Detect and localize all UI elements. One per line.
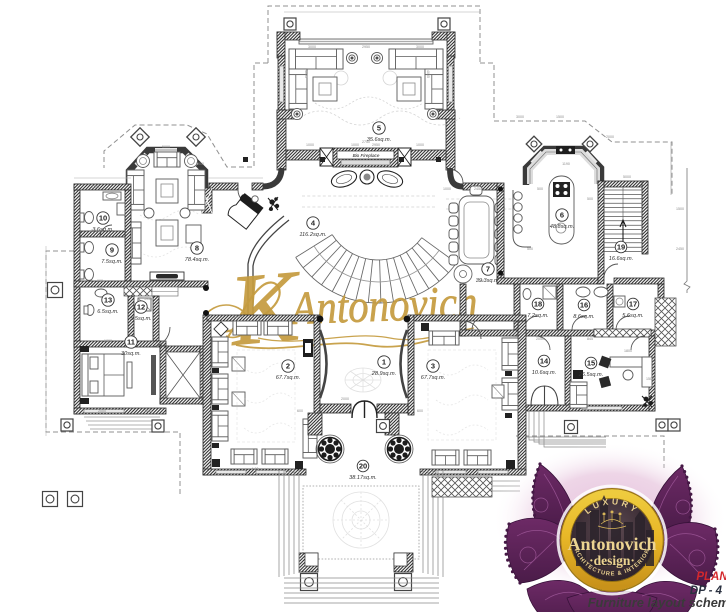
svg-text:1800: 1800 (104, 339, 112, 343)
svg-text:5.5sq.m.: 5.5sq.m. (130, 316, 151, 322)
svg-text:2000: 2000 (341, 397, 349, 401)
svg-text:17: 17 (629, 300, 637, 309)
svg-text:1000: 1000 (416, 143, 424, 147)
svg-text:2700: 2700 (91, 185, 99, 189)
svg-text:2250: 2250 (91, 229, 99, 233)
svg-text:1190: 1190 (562, 162, 570, 166)
svg-text:4005: 4005 (426, 70, 430, 78)
svg-text:700: 700 (517, 279, 523, 283)
svg-text:500: 500 (527, 247, 533, 251)
svg-text:2450: 2450 (676, 247, 684, 251)
svg-text:10: 10 (99, 214, 107, 223)
svg-text:1500: 1500 (556, 115, 564, 119)
svg-text:6: 6 (560, 211, 564, 220)
svg-text:67.7sq.m.: 67.7sq.m. (421, 375, 446, 381)
svg-text:2000: 2000 (606, 135, 614, 139)
svg-text:PLAN: PLAN (696, 571, 726, 583)
svg-text:3680: 3680 (144, 409, 152, 413)
svg-text:600: 600 (297, 409, 303, 413)
svg-text:24.07: 24.07 (234, 315, 243, 319)
svg-text:30sq.m.: 30sq.m. (121, 351, 141, 357)
svg-text:2050: 2050 (536, 337, 544, 341)
svg-text:8.6sq.m.: 8.6sq.m. (573, 314, 594, 320)
svg-text:12: 12 (137, 303, 145, 312)
svg-text:18: 18 (534, 300, 542, 309)
svg-text:1000: 1000 (306, 143, 314, 147)
svg-text:14: 14 (540, 357, 549, 366)
svg-text:Bio Fireplace: Bio Fireplace (353, 153, 380, 158)
svg-text:2750: 2750 (362, 140, 370, 144)
svg-text:2450: 2450 (474, 187, 482, 191)
svg-text:1000: 1000 (351, 143, 359, 147)
svg-text:5000: 5000 (623, 175, 631, 179)
svg-text:8: 8 (195, 244, 199, 253)
svg-text:3000: 3000 (516, 115, 524, 119)
svg-text:16.6sq.m.: 16.6sq.m. (609, 256, 634, 262)
svg-text:9: 9 (110, 246, 114, 255)
svg-text:1500: 1500 (676, 207, 684, 211)
svg-text:1000: 1000 (443, 187, 451, 191)
svg-text:Antonovich: Antonovich (567, 534, 656, 554)
svg-text:38.17sq.m.: 38.17sq.m. (349, 475, 377, 481)
svg-text:28.9sq.m.: 28.9sq.m. (371, 371, 397, 377)
svg-text:7.2sq.m.: 7.2sq.m. (527, 313, 548, 319)
svg-text:·design·: ·design· (589, 553, 635, 568)
svg-text:7: 7 (486, 265, 490, 274)
svg-text:15: 15 (587, 359, 595, 368)
svg-text:5.6sq.m.: 5.6sq.m. (622, 313, 643, 319)
svg-text:2000: 2000 (476, 279, 484, 283)
svg-text:7.5sq.m.: 7.5sq.m. (101, 259, 122, 265)
svg-text:4005: 4005 (304, 70, 308, 78)
svg-text:3: 3 (431, 362, 435, 371)
svg-text:1503: 1503 (646, 377, 654, 381)
svg-text:3000: 3000 (308, 45, 316, 49)
svg-text:6.5sq.m.: 6.5sq.m. (97, 309, 118, 315)
svg-text:5: 5 (377, 124, 381, 133)
svg-text:11: 11 (127, 338, 135, 347)
svg-text:500: 500 (537, 187, 543, 191)
svg-text:600: 600 (417, 409, 423, 413)
svg-text:2: 2 (286, 362, 290, 371)
svg-text:78.4sq.m.: 78.4sq.m. (185, 257, 210, 263)
svg-text:500: 500 (587, 197, 593, 201)
svg-text:2000: 2000 (98, 409, 106, 413)
svg-text:48.8sq.m.: 48.8sq.m. (550, 224, 575, 230)
svg-text:20: 20 (359, 462, 367, 471)
svg-text:2950: 2950 (362, 45, 370, 49)
svg-text:845: 845 (587, 337, 593, 341)
svg-text:19: 19 (617, 243, 625, 252)
svg-text:5000: 5000 (196, 162, 204, 166)
svg-text:1800: 1800 (624, 349, 632, 353)
svg-text:26.5sq.m.: 26.5sq.m. (578, 372, 604, 378)
svg-text:5000: 5000 (162, 145, 170, 149)
svg-text:10.6sq.m.: 10.6sq.m. (532, 370, 557, 376)
svg-text:900: 900 (97, 279, 103, 283)
svg-text:3000: 3000 (416, 45, 424, 49)
svg-text:67.7sq.m.: 67.7sq.m. (276, 375, 301, 381)
svg-text:116.2sq.m.: 116.2sq.m. (299, 232, 326, 238)
svg-text:16: 16 (580, 301, 588, 310)
svg-text:Furniture layout scheme: Furniture layout scheme (588, 595, 726, 610)
svg-text:13: 13 (104, 296, 112, 305)
svg-text:1: 1 (382, 358, 386, 367)
svg-text:1935: 1935 (144, 297, 152, 301)
svg-text:9.00: 9.00 (259, 315, 266, 319)
svg-text:2950: 2950 (372, 143, 380, 147)
svg-text:4.00: 4.00 (252, 467, 259, 471)
